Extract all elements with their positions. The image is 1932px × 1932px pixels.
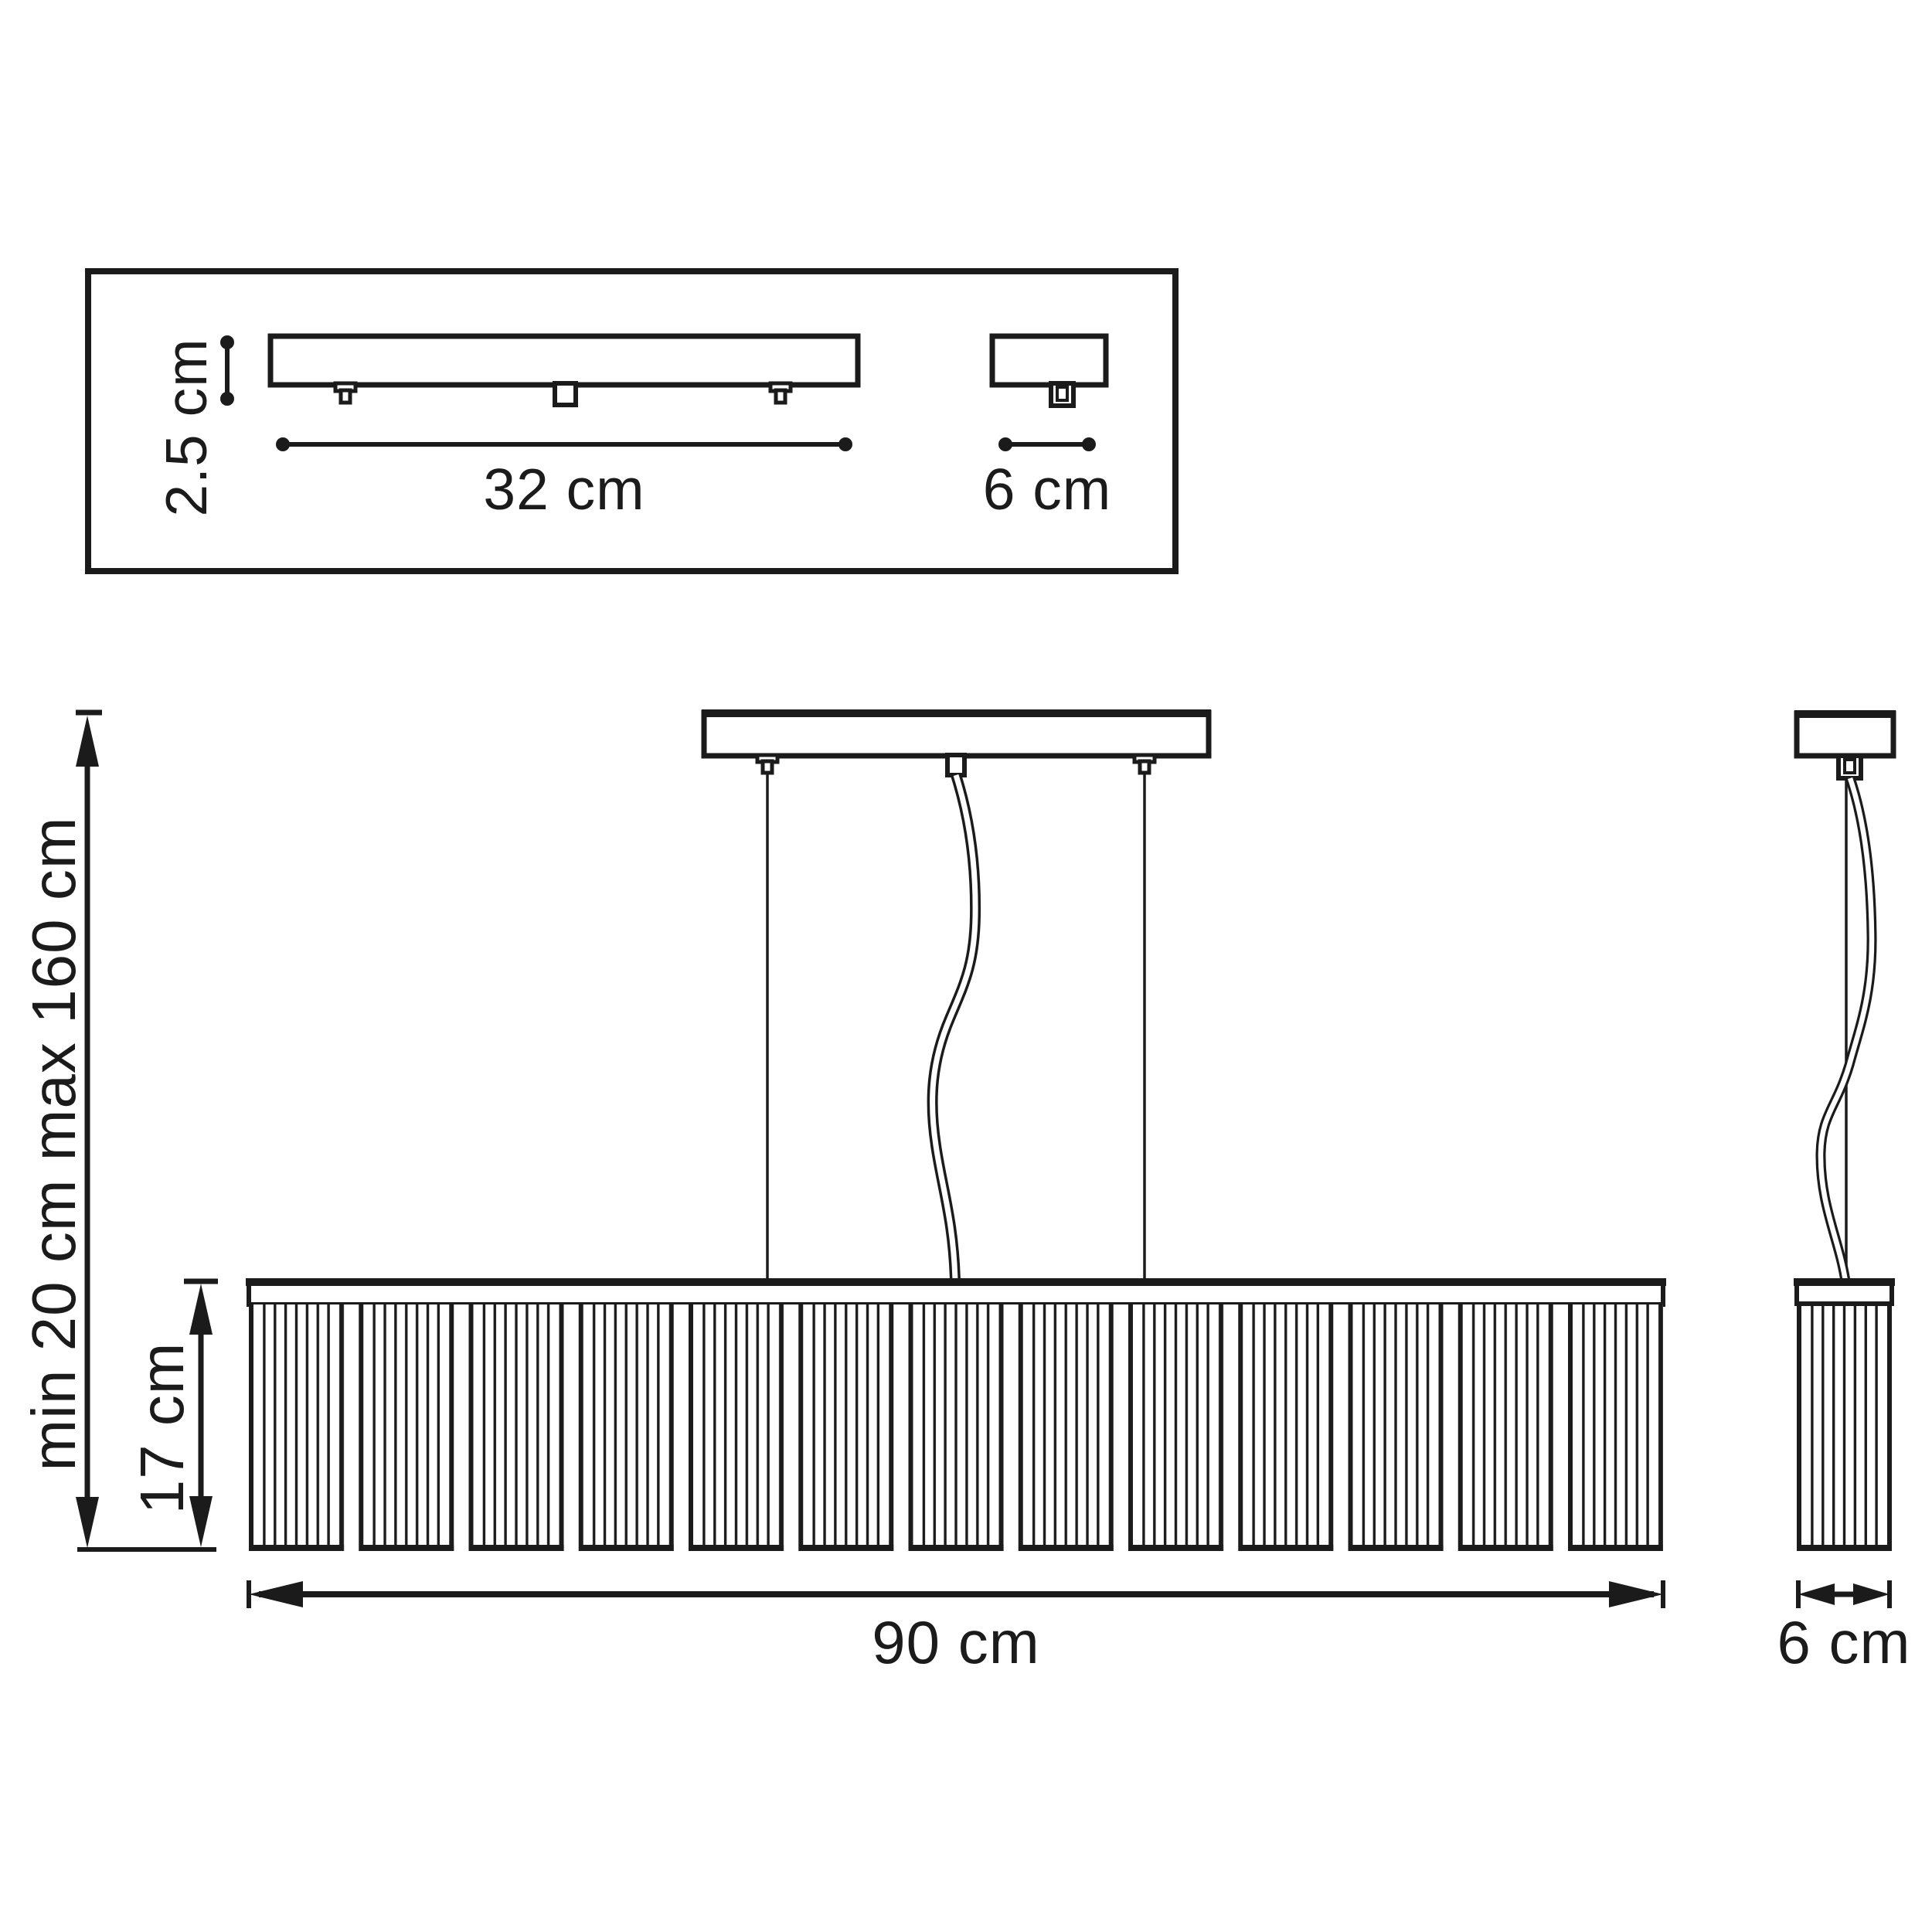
plate-cable-outlet: [555, 383, 576, 405]
power-cord: [933, 755, 976, 1281]
label-canopy-depth: 6 cm: [983, 457, 1112, 522]
plate-screw-left: [335, 383, 355, 403]
label-canopy-length: 32 cm: [483, 457, 645, 522]
label-shade-height: 17 cm: [128, 1342, 196, 1515]
label-fixture-width: 90 cm: [872, 1608, 1039, 1676]
shade-side: [1794, 1278, 1895, 1551]
plate-side-connector: [1051, 383, 1073, 406]
dim-fixture-width: [249, 1580, 1663, 1608]
label-suspension-height: min 20 cm max 160 cm: [19, 817, 88, 1471]
plate-screw-right: [770, 383, 791, 403]
dim-plate-length: [276, 437, 852, 451]
suspension-wire-right: [1134, 755, 1155, 1283]
pendant-lamp-dimension-drawing: 2.5 cm 32 cm 6 cm: [0, 0, 1932, 1932]
dim-fixture-depth: [1798, 1580, 1889, 1608]
side-view: [1794, 710, 1896, 1551]
ceiling-plate-side: [992, 336, 1106, 385]
label-canopy-thickness: 2.5 cm: [154, 338, 219, 516]
canopy-side-top-edge: [1794, 710, 1896, 718]
ceiling-plate-front: [270, 336, 858, 385]
ceiling-plate-detail-box: 2.5 cm 32 cm 6 cm: [88, 271, 1175, 571]
front-view: [246, 709, 1666, 1551]
detail-box-frame: [88, 271, 1175, 571]
canopy-side: [1797, 713, 1893, 756]
side-cord-grip: [1838, 756, 1861, 778]
cord-grip: [947, 755, 964, 775]
technical-drawing-canvas: 2.5 cm 32 cm 6 cm: [0, 0, 1932, 1932]
dim-plate-thickness: [220, 335, 234, 406]
shade-top-edge: [246, 1278, 1666, 1286]
shade-side-top-edge: [1794, 1278, 1895, 1286]
dim-plate-depth: [998, 437, 1096, 451]
canopy-front: [704, 713, 1209, 756]
label-fixture-depth: 6 cm: [1777, 1608, 1910, 1676]
canopy-front-top-edge: [702, 709, 1211, 717]
suspension-wire-left: [757, 755, 777, 1283]
shade-rod-sections: [249, 1304, 1663, 1551]
shade-front: [246, 1278, 1666, 1551]
